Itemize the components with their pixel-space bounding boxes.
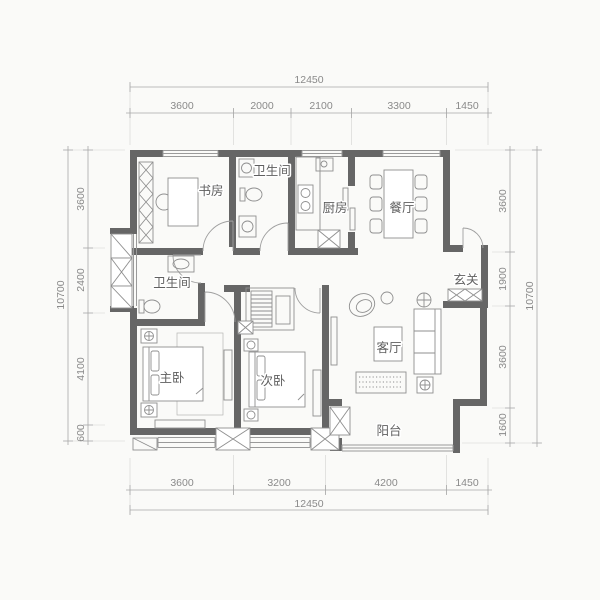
room-label-second: 次卧 (260, 373, 285, 388)
dim-right-total: 10700 (524, 281, 536, 310)
dim-right-seg-2: 3600 (497, 345, 509, 369)
dim-top-seg-3: 3300 (387, 100, 411, 112)
floor-plan-page: 12450 3600 2000 2100 3300 1450 3600 3200… (0, 0, 600, 600)
wardrobe-column (238, 321, 253, 334)
kitchen-sink (316, 158, 333, 171)
study-window (163, 149, 218, 158)
dimension-left-segments: 3600 2400 4100 600 (75, 146, 93, 445)
second-window (250, 438, 310, 448)
side-round-table (381, 292, 393, 304)
dim-left-seg-1: 2400 (75, 268, 87, 292)
room-label-bath2: 卫生间 (153, 275, 191, 290)
dim-right-seg-3: 1600 (497, 413, 509, 437)
dim-right-seg-1: 1900 (497, 267, 509, 291)
dimension-bottom-segments: 3600 3200 4200 1450 (126, 477, 492, 495)
dim-top-seg-2: 2100 (309, 100, 333, 112)
dim-top-seg-4: 1450 (455, 100, 479, 112)
study-furniture (139, 162, 198, 243)
master-window (158, 438, 215, 448)
vanity-sink (168, 256, 194, 272)
sofa (414, 309, 441, 374)
rug (356, 372, 406, 393)
entry-furniture (448, 289, 482, 301)
dim-right-seg-0: 3600 (497, 189, 509, 213)
nightstand (141, 403, 157, 417)
room-label-study: 书房 (198, 183, 223, 198)
second-furniture (238, 288, 321, 421)
sink (239, 216, 256, 237)
bookshelf (139, 162, 153, 243)
dim-bottom-seg-2: 4200 (374, 477, 398, 489)
dim-left-seg-3: 600 (75, 424, 87, 442)
dim-bottom-seg-1: 3200 (267, 477, 291, 489)
column-bottom-left (216, 428, 250, 450)
corner-casement-window (133, 438, 157, 450)
room-label-living: 客厅 (376, 340, 401, 355)
room-label-dining: 餐厅 (389, 200, 414, 215)
study-door (203, 221, 233, 256)
second-door (295, 288, 320, 313)
dimension-top-overall: 12450 (130, 74, 488, 92)
stove (298, 185, 313, 213)
bath2-bay-window (111, 234, 137, 308)
room-label-balcony: 阳台 (376, 423, 401, 438)
dim-top-seg-1: 2000 (250, 100, 274, 112)
dim-left-seg-2: 4100 (75, 357, 87, 381)
dimension-right-overall: 10700 (524, 146, 542, 447)
sofa-side-table (417, 377, 433, 393)
fridge (318, 230, 340, 248)
floor-plan-drawing: 12450 3600 2000 2100 3300 1450 3600 3200… (0, 0, 600, 600)
dim-left-seg-0: 3600 (75, 187, 87, 211)
ceiling-lamp-icon (417, 293, 431, 307)
bath1-door (260, 223, 288, 256)
room-label-master: 主卧 (159, 370, 184, 385)
dim-top-total: 12450 (294, 74, 323, 86)
nightstand (244, 339, 258, 351)
dining-window (383, 149, 440, 158)
bench (155, 420, 205, 428)
nightstand (244, 409, 258, 421)
balcony-glass (342, 445, 453, 451)
dim-bottom-total: 12450 (294, 498, 323, 510)
dimension-left-overall: 10700 (55, 146, 73, 445)
dimension-top-segments: 3600 2000 2100 3300 1450 (126, 100, 492, 118)
dim-top-seg-0: 3600 (170, 100, 194, 112)
washing-machine (239, 159, 254, 177)
dim-left-total: 10700 (55, 280, 67, 309)
master-door (205, 292, 235, 322)
entry-door (463, 228, 483, 248)
master-furniture (141, 329, 232, 428)
room-label-bath1: 卫生间 (253, 163, 291, 178)
armchair (346, 290, 379, 321)
dresser (224, 350, 232, 400)
toilet (240, 188, 262, 201)
column-balcony-left (330, 407, 350, 435)
dimension-bottom-overall: 12450 (130, 498, 488, 515)
dim-bottom-seg-3: 1450 (455, 477, 479, 489)
room-label-entry: 玄关 (453, 272, 478, 287)
shoe-cabinet (448, 289, 482, 301)
dimension-right-segments: 3600 1900 3600 1600 (497, 146, 515, 447)
nightstand (141, 329, 157, 343)
desk (168, 178, 198, 226)
dim-bottom-seg-0: 3600 (170, 477, 194, 489)
toilet (139, 300, 160, 313)
tv-cabinet (331, 317, 337, 365)
room-label-kitchen: 厨房 (322, 200, 347, 215)
desk-shelf (313, 370, 321, 416)
